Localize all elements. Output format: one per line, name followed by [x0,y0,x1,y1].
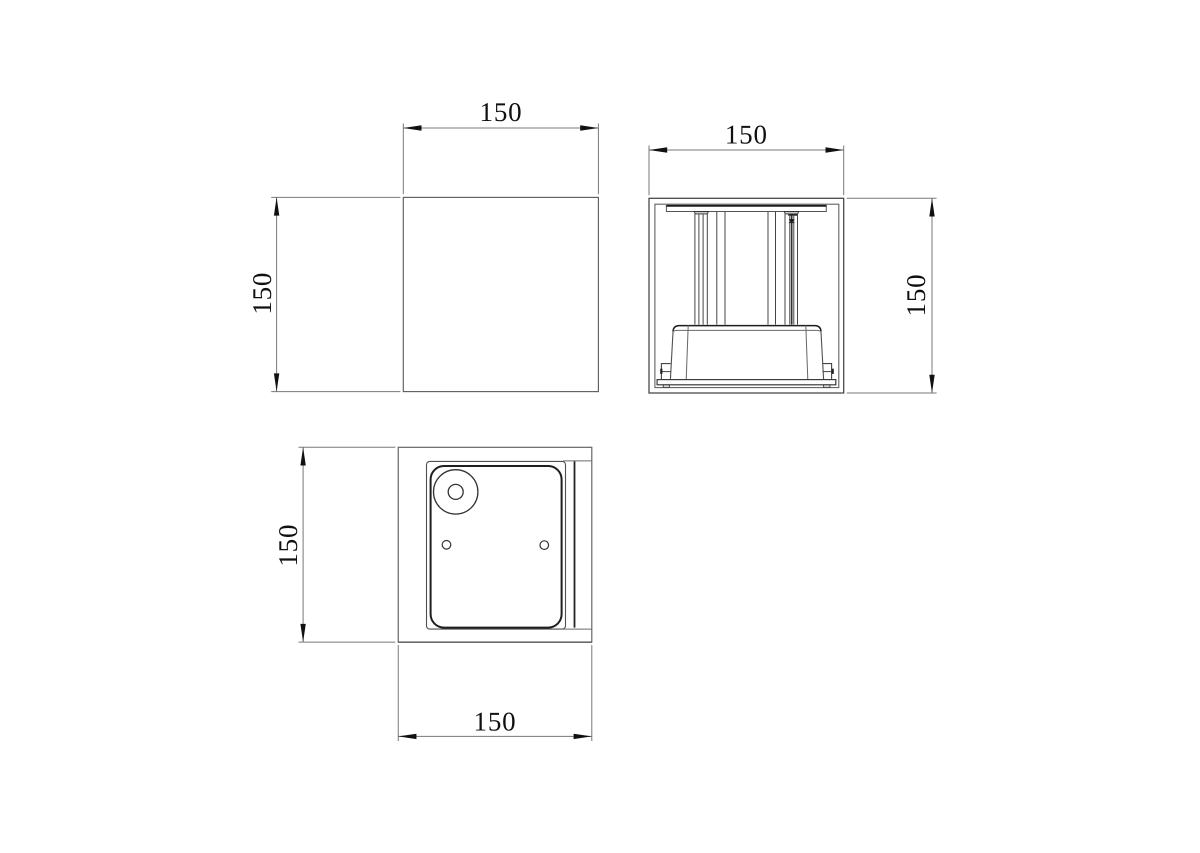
svg-text:150: 150 [901,274,931,317]
svg-text:150: 150 [480,97,523,127]
svg-text:150: 150 [247,272,277,315]
svg-text:150: 150 [273,524,303,567]
svg-text:150: 150 [474,706,517,736]
svg-text:150: 150 [725,120,768,150]
